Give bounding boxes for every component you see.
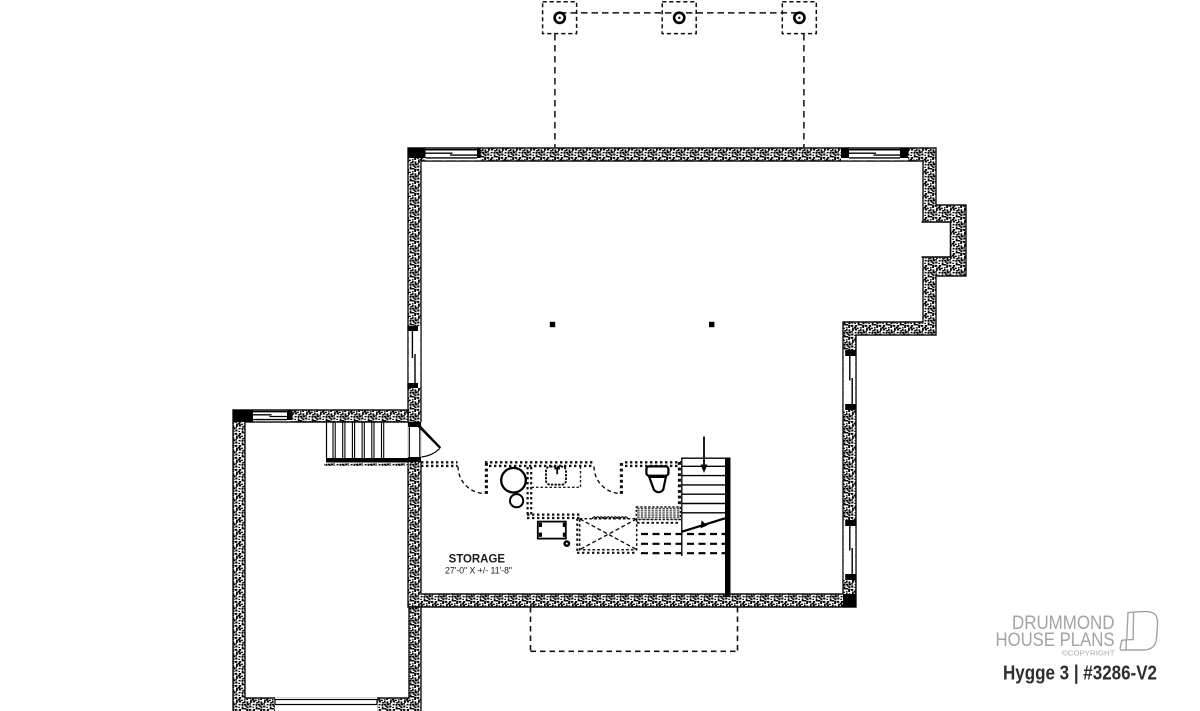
svg-text:27'-0" X +/- 11'-8": 27'-0" X +/- 11'-8" — [445, 565, 512, 575]
svg-text:STORAGE: STORAGE — [449, 552, 506, 565]
svg-text:Hygge 3 | #3286-V2: Hygge 3 | #3286-V2 — [1003, 661, 1157, 684]
svg-text:©COPYRIGHT: ©COPYRIGHT — [1062, 649, 1115, 658]
